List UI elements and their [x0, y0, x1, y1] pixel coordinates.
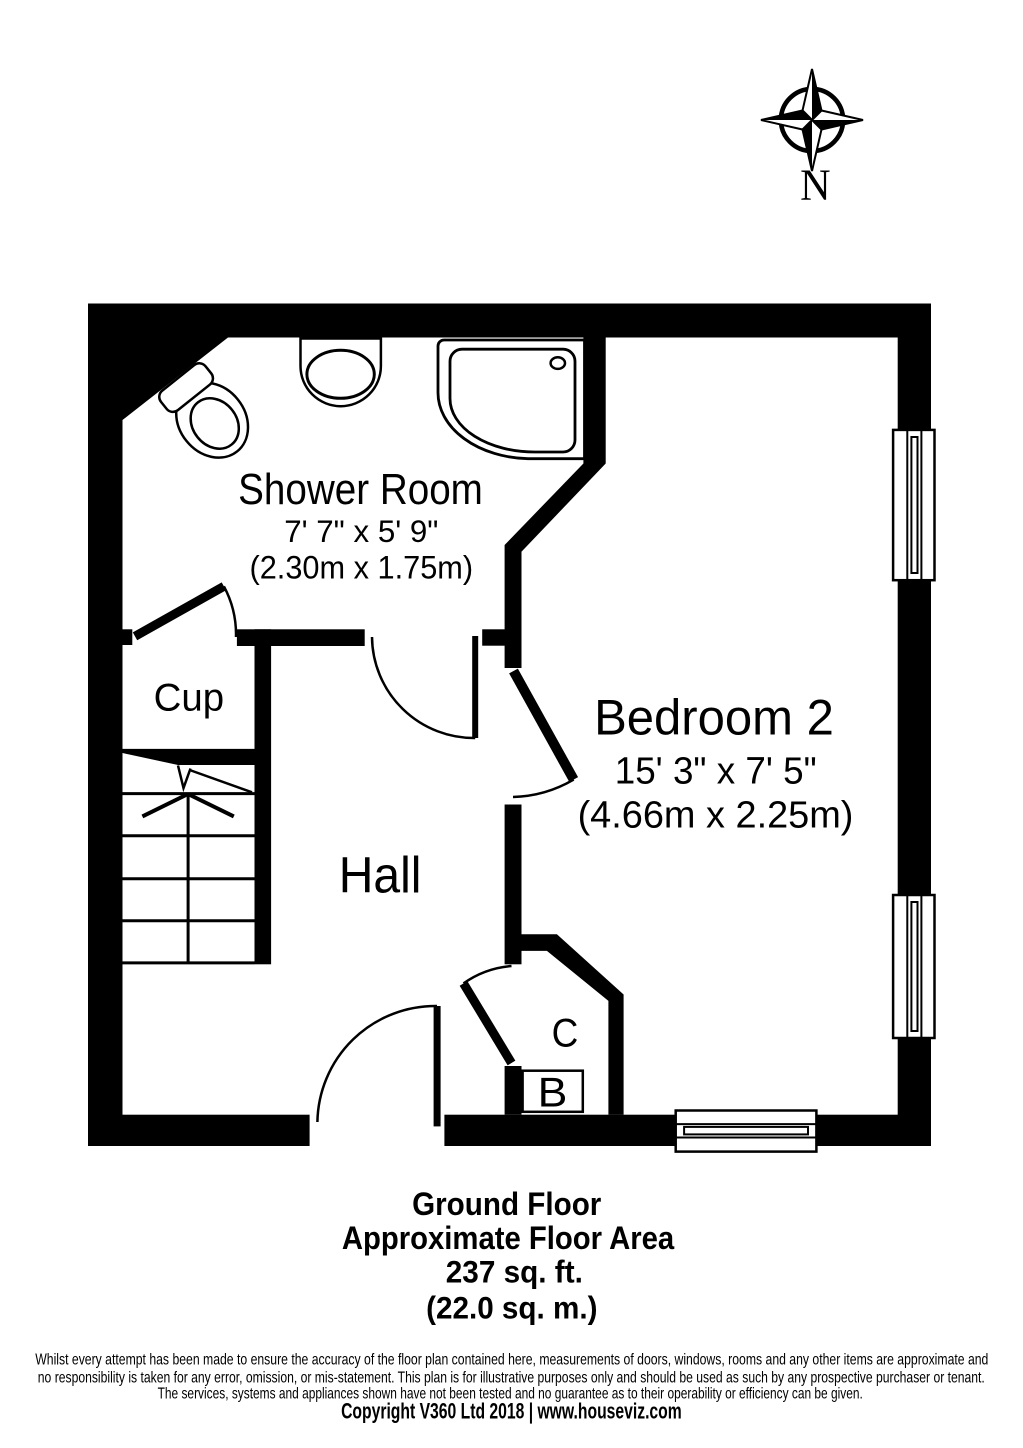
- svg-text:Approximate Floor Area: Approximate Floor Area: [342, 1221, 675, 1256]
- svg-text:15' 3" x 7' 5": 15' 3" x 7' 5": [615, 749, 817, 792]
- svg-text:Shower Room: Shower Room: [238, 465, 483, 514]
- svg-text:(2.30m x 1.75m): (2.30m x 1.75m): [249, 550, 473, 586]
- svg-text:The services, systems and appl: The services, systems and appliances sho…: [158, 1384, 863, 1402]
- svg-text:Whilst every attempt has been: Whilst every attempt has been made to en…: [35, 1350, 988, 1368]
- svg-text:7' 7" x 5' 9": 7' 7" x 5' 9": [284, 514, 438, 549]
- svg-text:Hall: Hall: [339, 847, 422, 903]
- svg-text:Cup: Cup: [154, 676, 224, 719]
- svg-text:Copyright V360 Ltd 2018 | www.: Copyright V360 Ltd 2018 | www.houseviz.c…: [341, 1400, 682, 1424]
- svg-text:(4.66m x 2.25m): (4.66m x 2.25m): [578, 793, 854, 836]
- svg-text:237 sq. ft.: 237 sq. ft.: [446, 1255, 583, 1290]
- svg-text:(22.0 sq. m.): (22.0 sq. m.): [426, 1291, 597, 1326]
- svg-text:Ground Floor: Ground Floor: [412, 1186, 601, 1222]
- svg-text:Bedroom 2: Bedroom 2: [594, 689, 834, 746]
- svg-text:C: C: [552, 1011, 579, 1056]
- svg-text:B: B: [538, 1070, 568, 1116]
- svg-text:N: N: [800, 160, 830, 209]
